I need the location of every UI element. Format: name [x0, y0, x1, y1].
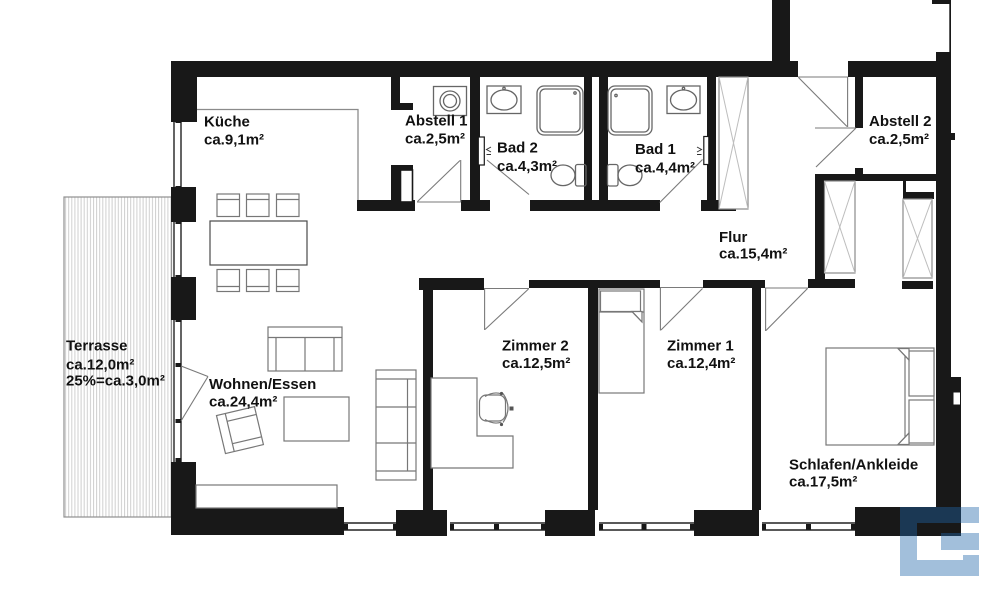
svg-text:Bad 2: Bad 2 [497, 140, 538, 157]
svg-text:ca.9,1m²: ca.9,1m² [204, 132, 264, 149]
svg-text:Flur: Flur [719, 229, 747, 246]
svg-text:Wohnen/Essen: Wohnen/Essen [209, 376, 316, 393]
svg-text:ca.24,4m²: ca.24,4m² [209, 394, 277, 411]
svg-text:Abstell 2: Abstell 2 [869, 113, 932, 130]
svg-text:ca.17,5m²: ca.17,5m² [789, 474, 857, 491]
svg-text:Zimmer 1: Zimmer 1 [667, 338, 734, 355]
svg-text:Zimmer 2: Zimmer 2 [502, 338, 569, 355]
svg-text:ca.12,5m²: ca.12,5m² [502, 355, 570, 372]
svg-text:ca.12,4m²: ca.12,4m² [667, 355, 735, 372]
svg-text:ca.4,4m²: ca.4,4m² [635, 160, 695, 177]
svg-text:Terrasse: Terrasse [66, 338, 127, 355]
svg-text:Bad 1: Bad 1 [635, 141, 676, 158]
svg-text:ca.12,0m²: ca.12,0m² [66, 357, 134, 374]
svg-text:25%=ca.3,0m²: 25%=ca.3,0m² [66, 373, 165, 390]
svg-text:Schlafen/Ankleide: Schlafen/Ankleide [789, 457, 918, 474]
svg-text:ca.15,4m²: ca.15,4m² [719, 246, 787, 263]
svg-text:ca.2,5m²: ca.2,5m² [405, 131, 465, 148]
svg-text:Küche: Küche [204, 114, 250, 131]
svg-text:Abstell 1: Abstell 1 [405, 113, 468, 130]
svg-text:ca.2,5m²: ca.2,5m² [869, 131, 929, 148]
svg-text:ca.4,3m²: ca.4,3m² [497, 158, 557, 175]
